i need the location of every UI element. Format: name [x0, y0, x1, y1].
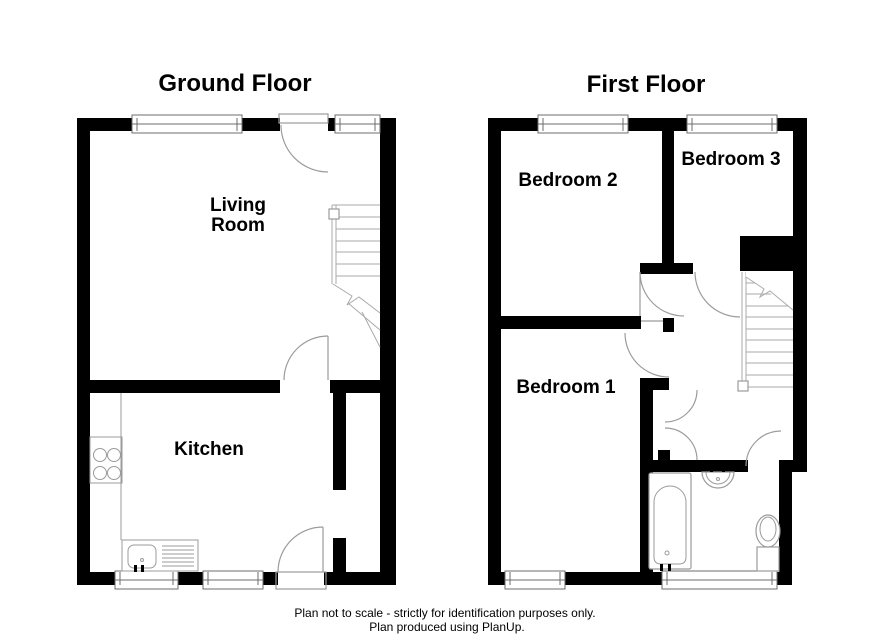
bedroom3-door [695, 272, 740, 317]
kitchen-label: Kitchen [174, 439, 244, 460]
footer-line1: Plan not to scale - strictly for identif… [294, 606, 595, 620]
floorplan-page: Ground Floor [0, 0, 886, 644]
stair-bulkhead [740, 236, 807, 271]
ground-floor-stairs [329, 205, 380, 347]
kitchen-sink [122, 540, 198, 572]
footer-line2: Plan produced using PlanUp. [369, 620, 524, 634]
bathtub [649, 473, 691, 571]
living-room-window [132, 115, 242, 133]
living-room-label-line2: Room [211, 215, 265, 236]
bathroom-window [662, 571, 777, 589]
kitchen-window-right [203, 571, 263, 589]
front-window [335, 115, 380, 133]
stair-newel-post [329, 209, 339, 219]
ground-floor-walls [77, 118, 396, 585]
kitchen-window-left [115, 571, 178, 589]
front-door [279, 114, 328, 172]
bedroom3-label: Bedroom 3 [681, 149, 780, 170]
cupboard-doors [665, 390, 697, 460]
bedroom1-label: Bedroom 1 [516, 377, 616, 398]
bedroom1-window [505, 571, 565, 589]
first-floor-stairs [738, 272, 793, 391]
bedroom2-window [538, 115, 628, 133]
ground-floor-title: Ground Floor [158, 70, 311, 97]
toilet [756, 515, 780, 571]
bedroom1-door [625, 333, 669, 377]
living-room-label-line1: Living [210, 195, 266, 216]
floorplan-canvas: Ground Floor [0, 0, 886, 644]
first-floor-title: First Floor [587, 71, 706, 98]
back-door [276, 527, 326, 589]
kitchen-door [284, 336, 328, 380]
first-floor-plan: First Floor [488, 71, 807, 589]
footer-disclaimer: Plan not to scale - strictly for identif… [294, 606, 595, 634]
bedroom2-label: Bedroom 2 [518, 170, 617, 191]
kitchen-hob [90, 437, 122, 483]
bathroom-door [746, 431, 781, 466]
bedroom3-window [687, 115, 777, 133]
ground-floor-plan: Ground Floor [77, 70, 396, 589]
stair-newel-post [738, 381, 748, 391]
bedroom2-door [640, 272, 684, 321]
